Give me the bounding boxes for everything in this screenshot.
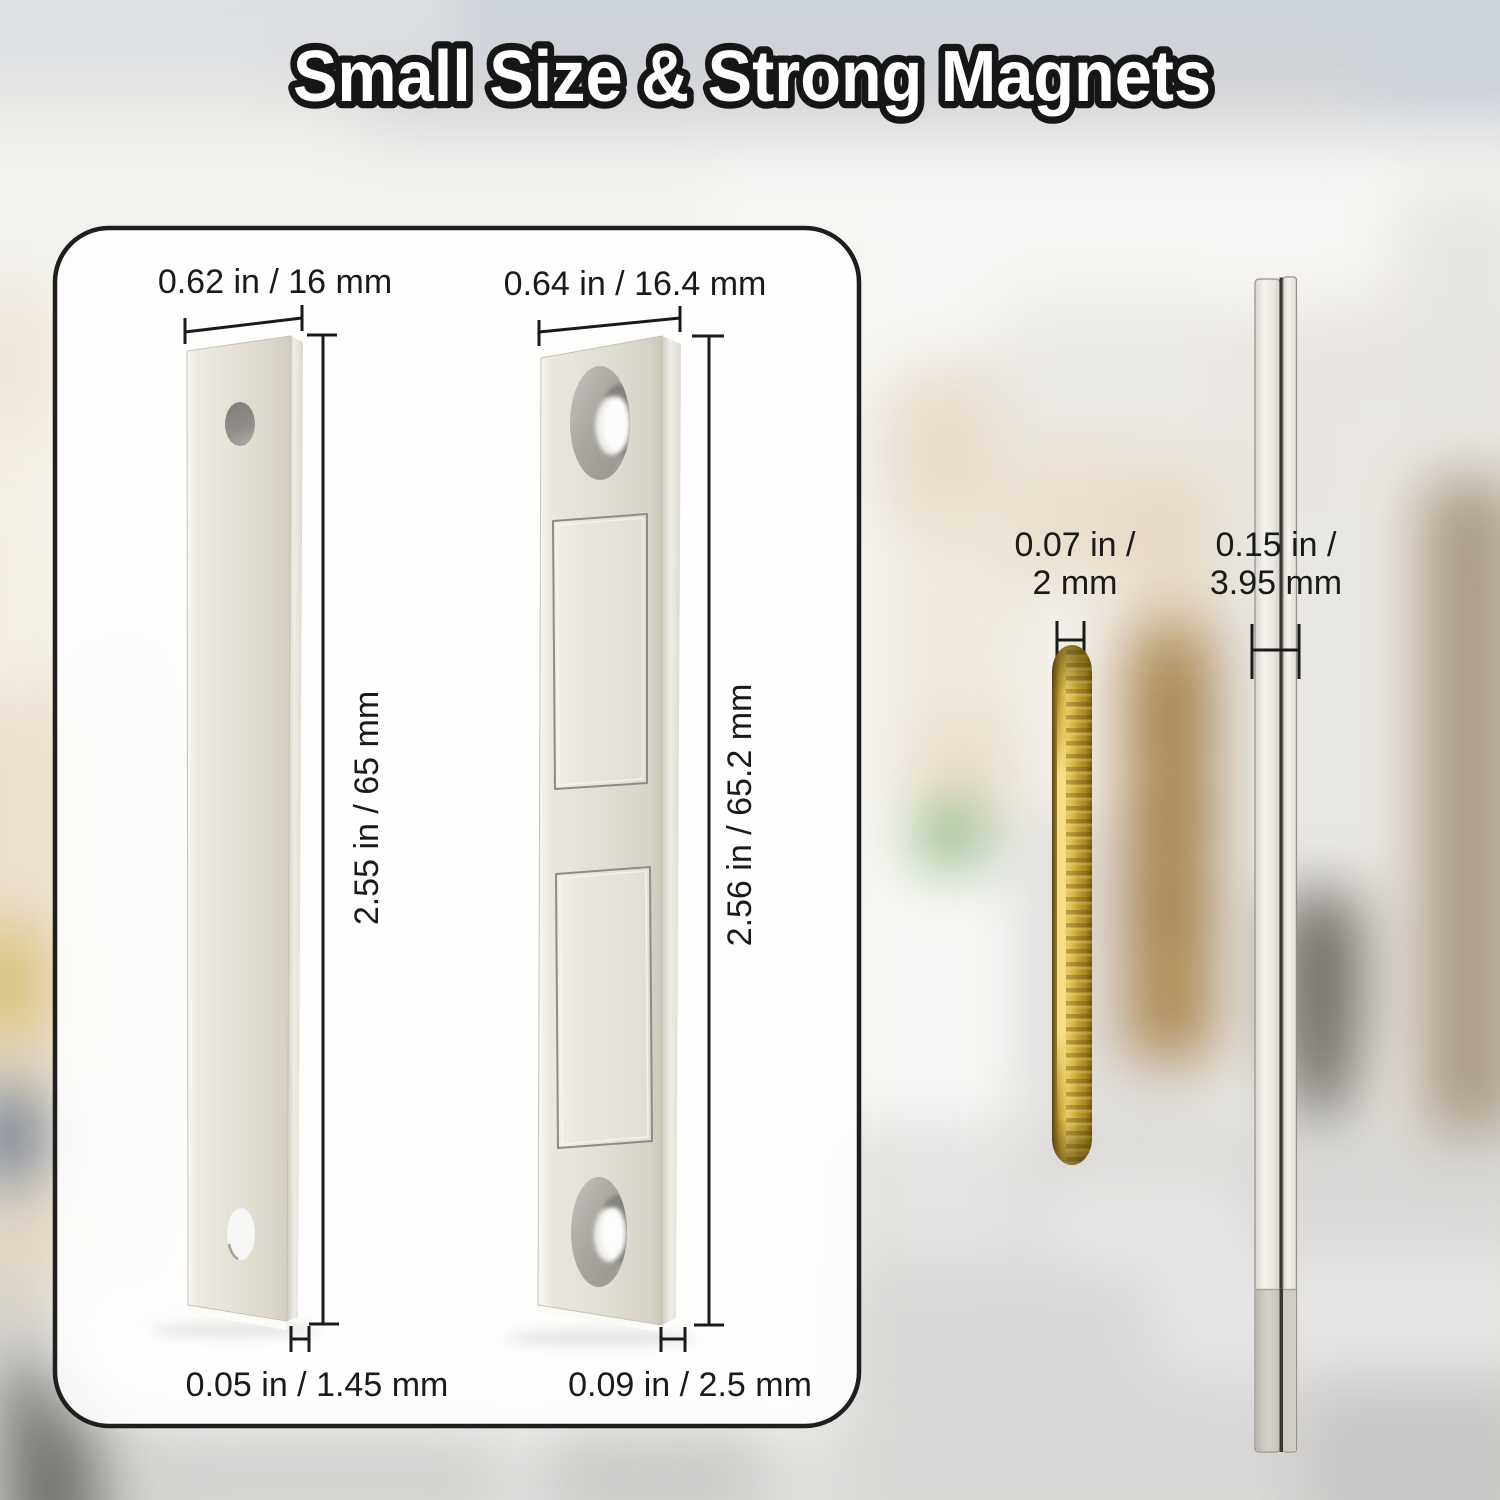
svg-text:2.55 in / 65 mm: 2.55 in / 65 mm xyxy=(348,691,386,925)
svg-text:0.07 in /: 0.07 in / xyxy=(1015,526,1137,564)
svg-text:Small Size & Strong Magnets: Small Size & Strong Magnets xyxy=(293,37,1211,117)
svg-text:0.62 in / 16 mm: 0.62 in / 16 mm xyxy=(158,263,392,301)
svg-text:2.56 in / 65.2 mm: 2.56 in / 65.2 mm xyxy=(721,684,759,947)
svg-text:0.64 in / 16.4 mm: 0.64 in / 16.4 mm xyxy=(504,265,767,303)
svg-text:0.09 in / 2.5 mm: 0.09 in / 2.5 mm xyxy=(568,1366,812,1404)
svg-text:2 mm: 2 mm xyxy=(1033,564,1118,602)
svg-text:0.05 in / 1.45 mm: 0.05 in / 1.45 mm xyxy=(186,1366,449,1404)
svg-text:0.15 in /: 0.15 in / xyxy=(1216,526,1338,564)
svg-text:3.95 mm: 3.95 mm xyxy=(1210,564,1342,602)
